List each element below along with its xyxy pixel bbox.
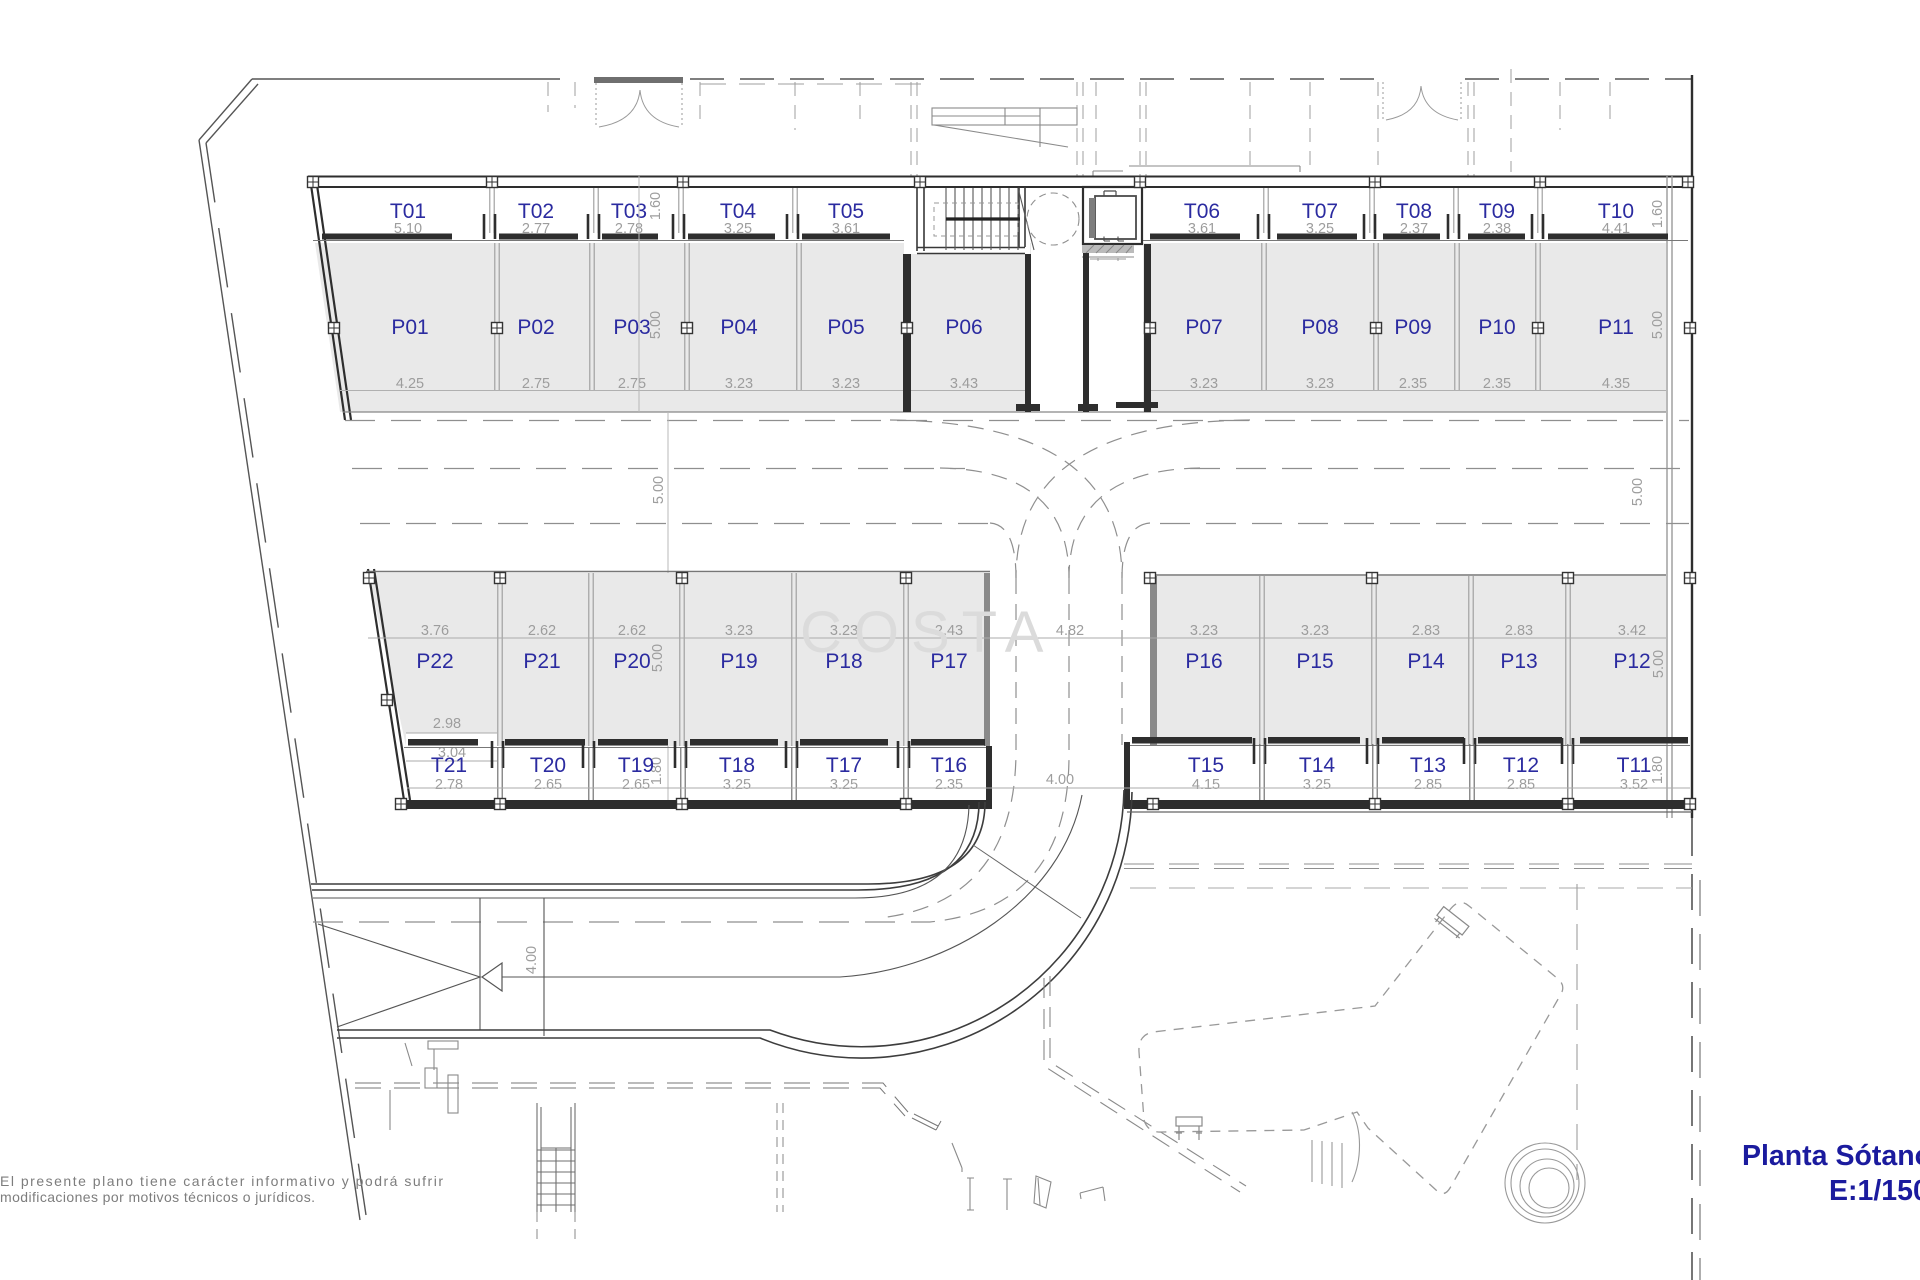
svg-text:COSTA: COSTA — [800, 600, 1056, 665]
svg-text:5.00: 5.00 — [1630, 478, 1646, 506]
svg-text:P07: P07 — [1185, 316, 1222, 339]
svg-text:3.23: 3.23 — [725, 623, 753, 639]
svg-text:T12: T12 — [1503, 754, 1539, 777]
svg-text:3.76: 3.76 — [421, 623, 449, 639]
svg-text:P16: P16 — [1185, 650, 1222, 673]
svg-text:T09: T09 — [1479, 200, 1515, 223]
svg-text:P02: P02 — [517, 316, 554, 339]
svg-text:T14: T14 — [1299, 754, 1336, 777]
svg-text:2.62: 2.62 — [528, 623, 556, 639]
svg-text:Planta Sótano: Planta Sótano — [1742, 1140, 1920, 1172]
svg-text:5.00: 5.00 — [1650, 311, 1666, 339]
svg-text:P10: P10 — [1478, 316, 1515, 339]
svg-text:T20: T20 — [530, 754, 566, 777]
svg-text:3.23: 3.23 — [1190, 376, 1218, 392]
svg-text:T04: T04 — [720, 200, 757, 223]
svg-text:1.60: 1.60 — [648, 192, 664, 220]
svg-text:3.23: 3.23 — [1301, 623, 1329, 639]
svg-text:P19: P19 — [720, 650, 757, 673]
svg-text:5.00: 5.00 — [1651, 650, 1667, 678]
svg-text:T17: T17 — [826, 754, 862, 777]
svg-text:P01: P01 — [391, 316, 428, 339]
svg-text:4.00: 4.00 — [1046, 772, 1074, 788]
svg-text:T19: T19 — [618, 754, 654, 777]
svg-text:3.25: 3.25 — [1303, 777, 1331, 793]
svg-text:2.75: 2.75 — [522, 376, 550, 392]
svg-text:2.37: 2.37 — [1400, 221, 1428, 237]
svg-text:T07: T07 — [1302, 200, 1338, 223]
svg-text:2.77: 2.77 — [522, 221, 550, 237]
svg-text:3.42: 3.42 — [1618, 623, 1646, 639]
svg-text:T05: T05 — [828, 200, 864, 223]
svg-text:P03: P03 — [613, 316, 650, 339]
svg-text:2.38: 2.38 — [1483, 221, 1511, 237]
svg-text:2.85: 2.85 — [1507, 777, 1535, 793]
svg-text:2.85: 2.85 — [1414, 777, 1442, 793]
svg-text:4.82: 4.82 — [1056, 623, 1084, 639]
svg-text:T01: T01 — [390, 200, 426, 223]
svg-text:2.35: 2.35 — [935, 777, 963, 793]
svg-text:P06: P06 — [945, 316, 982, 339]
svg-text:3.23: 3.23 — [725, 376, 753, 392]
svg-text:3.23: 3.23 — [1190, 623, 1218, 639]
svg-text:T08: T08 — [1396, 200, 1432, 223]
svg-text:3.23: 3.23 — [832, 376, 860, 392]
svg-text:4.15: 4.15 — [1192, 777, 1220, 793]
svg-text:3.25: 3.25 — [830, 777, 858, 793]
svg-text:3.43: 3.43 — [950, 376, 978, 392]
svg-text:T16: T16 — [931, 754, 967, 777]
svg-text:2.65: 2.65 — [622, 777, 650, 793]
svg-text:2.83: 2.83 — [1505, 623, 1533, 639]
svg-text:5.00: 5.00 — [650, 644, 666, 672]
svg-text:P09: P09 — [1394, 316, 1431, 339]
svg-text:5.10: 5.10 — [394, 221, 422, 237]
svg-text:P14: P14 — [1407, 650, 1445, 673]
svg-text:P11: P11 — [1598, 316, 1634, 339]
svg-text:P15: P15 — [1296, 650, 1333, 673]
svg-text:P04: P04 — [720, 316, 758, 339]
svg-text:P20: P20 — [613, 650, 650, 673]
svg-text:2.35: 2.35 — [1399, 376, 1427, 392]
svg-text:T11: T11 — [1617, 754, 1652, 777]
svg-text:4.35: 4.35 — [1602, 376, 1630, 392]
svg-text:2.62: 2.62 — [618, 623, 646, 639]
svg-text:T02: T02 — [518, 200, 554, 223]
svg-text:2.83: 2.83 — [1412, 623, 1440, 639]
svg-text:3.61: 3.61 — [1188, 221, 1216, 237]
svg-text:P13: P13 — [1500, 650, 1537, 673]
svg-text:3.23: 3.23 — [1306, 376, 1334, 392]
svg-text:4.00: 4.00 — [524, 946, 540, 974]
svg-text:4.25: 4.25 — [396, 376, 424, 392]
svg-text:1.80: 1.80 — [1650, 756, 1666, 784]
svg-text:El presente plano tiene ca: El presente plano tiene carácter informa… — [0, 1173, 443, 1189]
svg-text:T18: T18 — [719, 754, 755, 777]
svg-text:4.41: 4.41 — [1602, 221, 1630, 237]
svg-text:P21: P21 — [523, 650, 560, 673]
svg-text:T21: T21 — [431, 754, 467, 777]
svg-text:5.00: 5.00 — [651, 476, 667, 504]
svg-text:2.98: 2.98 — [433, 716, 461, 732]
svg-text:2.35: 2.35 — [1483, 376, 1511, 392]
svg-text:3.25: 3.25 — [1306, 221, 1334, 237]
svg-text:1.60: 1.60 — [1650, 200, 1666, 228]
svg-text:5.00: 5.00 — [648, 311, 664, 339]
svg-text:3.52: 3.52 — [1620, 777, 1648, 793]
svg-text:P12: P12 — [1613, 650, 1650, 673]
svg-text:3.61: 3.61 — [832, 221, 860, 237]
svg-text:T15: T15 — [1188, 754, 1224, 777]
svg-text:E:1/150: E:1/150 — [1829, 1175, 1920, 1207]
svg-text:T06: T06 — [1184, 200, 1220, 223]
svg-text:T03: T03 — [611, 200, 647, 223]
svg-text:2.78: 2.78 — [435, 777, 463, 793]
svg-text:modificaciones por motivos téc: modificaciones por motivos técnicos o ju… — [0, 1189, 315, 1205]
svg-text:3.25: 3.25 — [723, 777, 751, 793]
svg-text:T13: T13 — [1410, 754, 1446, 777]
svg-text:T10: T10 — [1598, 200, 1634, 223]
svg-text:2.75: 2.75 — [618, 376, 646, 392]
svg-text:P22: P22 — [416, 650, 453, 673]
svg-text:3.25: 3.25 — [724, 221, 752, 237]
svg-text:P05: P05 — [827, 316, 864, 339]
svg-text:P08: P08 — [1301, 316, 1338, 339]
svg-text:2.65: 2.65 — [534, 777, 562, 793]
